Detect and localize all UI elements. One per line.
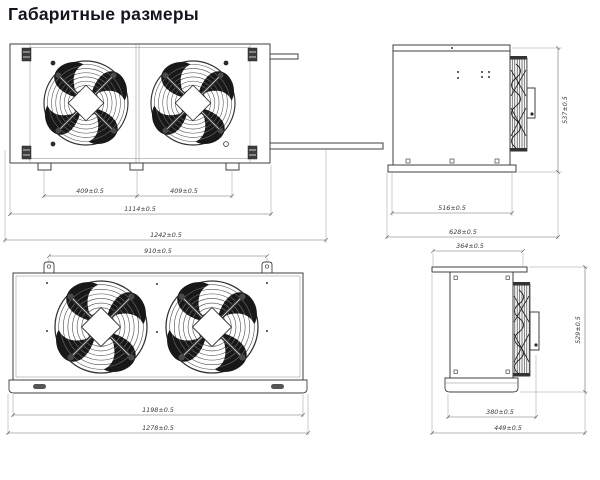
unit2-front-dimensions-bottom: 1198±0.5 1278±0.5: [8, 394, 308, 435]
hinge-icon: [248, 146, 257, 159]
dimension-label: 516±0.5: [438, 204, 466, 212]
dimension-label: 537±0.5: [561, 96, 569, 124]
tray-vent: [33, 384, 46, 389]
unit2-side-body: [432, 267, 539, 392]
dimension-label: 409±0.5: [76, 187, 104, 195]
tray-vent: [271, 384, 284, 389]
top-flange: [432, 267, 527, 272]
base-flange: [388, 165, 516, 172]
hanging-bracket-icon: [262, 262, 272, 273]
drain-tray: [445, 378, 518, 392]
unit2-front-body: [9, 262, 307, 393]
fan-icon: [166, 281, 258, 373]
dimension-drawing-page: Габаритные размеры: [0, 0, 600, 480]
unit1-side-body: [388, 45, 535, 172]
dimension-label: 1242±0.5: [150, 231, 182, 239]
dimension-label: 529±0.5: [574, 316, 582, 344]
dimension-label: 364±0.5: [456, 242, 484, 250]
fan-icon: [44, 61, 128, 145]
dimension-label: 1278±0.5: [142, 424, 174, 432]
unit2-side-view: 364±0.5: [432, 242, 588, 435]
foot: [130, 163, 143, 170]
dimension-label: 628±0.5: [449, 228, 477, 236]
unit1-front-dimensions: 409±0.5 409±0.5 1114±0.5 1242±0.5: [5, 150, 326, 243]
fan-icon: [151, 61, 235, 145]
fan-icon: [55, 281, 147, 373]
dimension-label: 910±0.5: [144, 247, 172, 255]
coil-heat-exchanger: [513, 282, 530, 377]
dimension-label: 449±0.5: [494, 424, 522, 432]
dimension-label: 1198±0.5: [142, 406, 174, 414]
pipe-stub: [270, 54, 298, 59]
coil-heat-exchanger: [510, 56, 527, 152]
drain-tray: [9, 380, 307, 393]
hinge-icon: [22, 48, 31, 61]
unit1-side-view: 537±0.5 516±0.5 628±0.5: [387, 45, 569, 239]
unit1-front-view: 409±0.5 409±0.5 1114±0.5 1242±0.5: [5, 44, 383, 243]
unit2-side-dimensions-top: 364±0.5: [433, 242, 523, 266]
coil-bracket: [530, 312, 539, 350]
foot: [226, 163, 239, 170]
foot: [38, 163, 51, 170]
unit2-front-view: 910±0.5 1198±0.5: [8, 247, 308, 435]
technical-drawing-canvas: 409±0.5 409±0.5 1114±0.5 1242±0.5 910±0.…: [0, 0, 600, 480]
hinge-icon: [248, 48, 257, 61]
hinge-icon: [22, 146, 31, 159]
hanging-bracket-icon: [44, 262, 54, 273]
pipe-long: [270, 143, 383, 149]
dimension-label: 409±0.5: [170, 187, 198, 195]
unit2-front-dimensions-top: 910±0.5: [49, 247, 267, 264]
dimension-label: 380±0.5: [486, 408, 514, 416]
dimension-label: 1114±0.5: [124, 205, 156, 213]
